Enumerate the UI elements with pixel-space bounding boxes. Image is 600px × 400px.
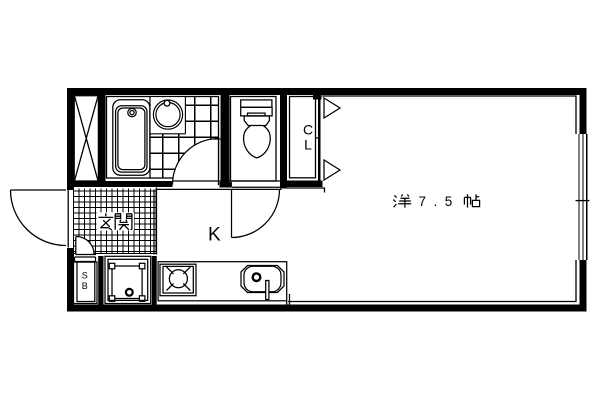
- svg-text:L: L: [304, 137, 312, 153]
- svg-text:B: B: [82, 281, 88, 291]
- svg-text:K: K: [208, 225, 221, 246]
- svg-text:S: S: [82, 270, 88, 280]
- svg-text:7.5: 7.5: [419, 194, 460, 209]
- svg-text:C: C: [303, 122, 313, 138]
